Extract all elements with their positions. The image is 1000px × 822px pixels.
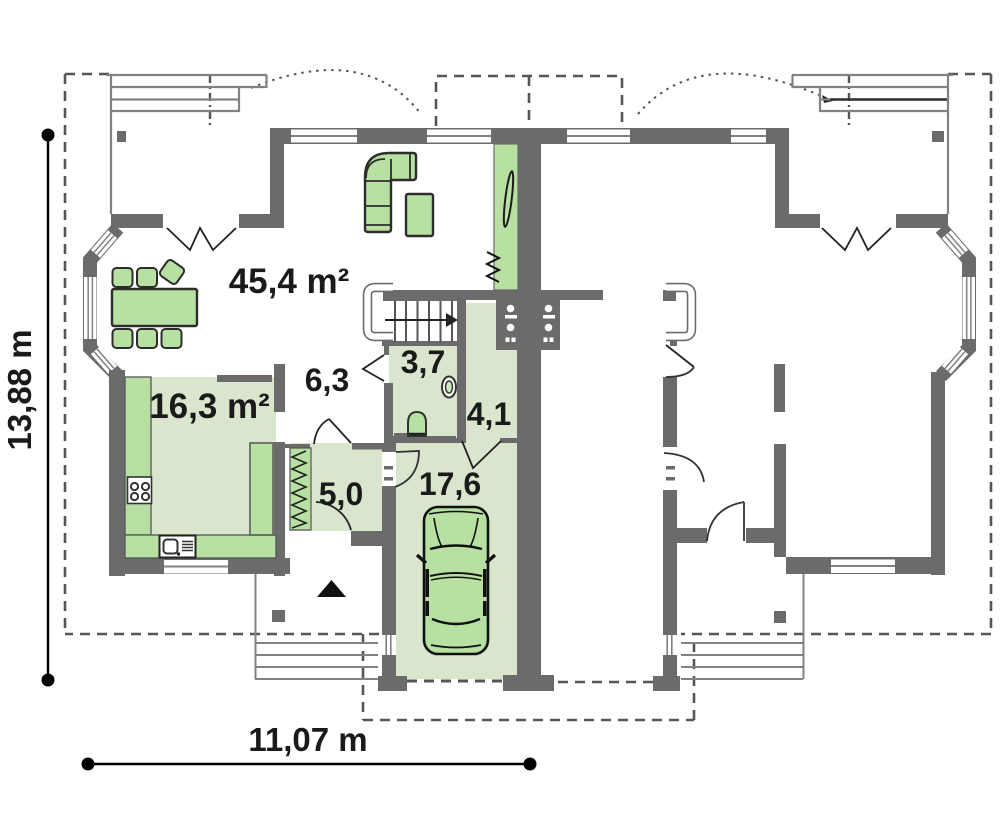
svg-text:45,4 m²: 45,4 m² <box>229 262 350 301</box>
svg-text:4,1: 4,1 <box>467 396 511 432</box>
svg-text:3,7: 3,7 <box>401 344 445 380</box>
svg-text:17,6: 17,6 <box>419 466 481 502</box>
svg-text:11,07 m: 11,07 m <box>248 721 367 758</box>
svg-text:6,3: 6,3 <box>305 362 349 398</box>
svg-text:5,0: 5,0 <box>319 476 363 512</box>
svg-text:16,3 m²: 16,3 m² <box>149 387 270 426</box>
svg-text:13,88 m: 13,88 m <box>1 329 38 450</box>
